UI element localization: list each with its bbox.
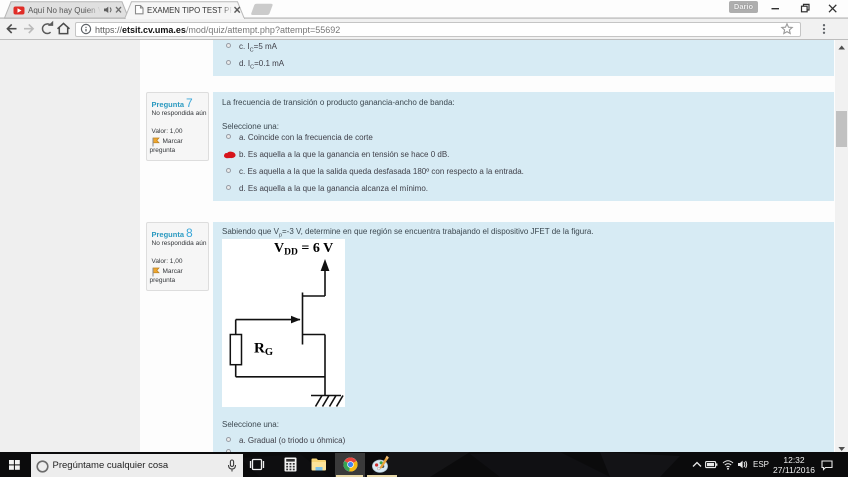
svg-text:VDD = 6 V: VDD = 6 V [274, 241, 333, 258]
svg-text:RG: RG [254, 341, 273, 359]
